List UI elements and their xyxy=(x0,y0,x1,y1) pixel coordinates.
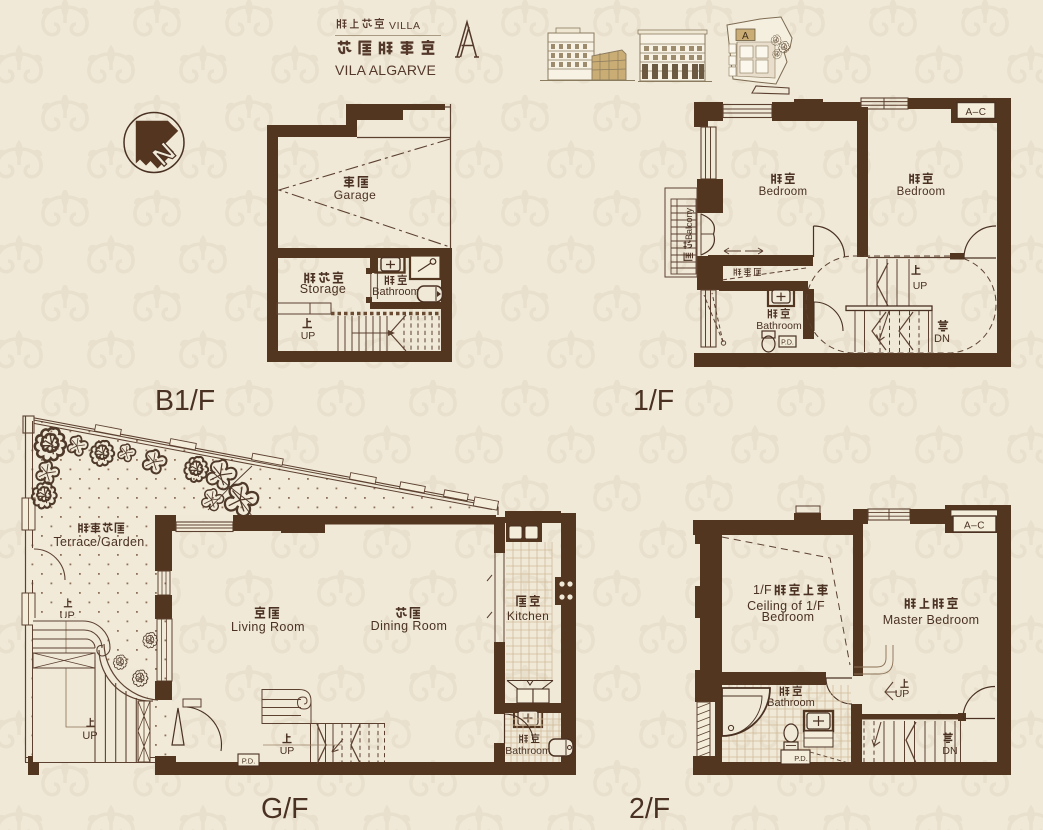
svg-text:Bedroom: Bedroom xyxy=(897,186,946,198)
svg-text:Bedroom: Bedroom xyxy=(762,610,815,624)
svg-text:Terrace/Garden: Terrace/Garden xyxy=(53,535,144,549)
svg-text:UP: UP xyxy=(913,280,928,292)
svg-text:Bathroom: Bathroom xyxy=(372,286,420,298)
svg-text:Bathroom: Bathroom xyxy=(756,320,802,332)
svg-text:P.D.: P.D. xyxy=(781,340,794,347)
svg-text:DN: DN xyxy=(942,745,957,757)
svg-text:Bedroom: Bedroom xyxy=(759,186,808,198)
svg-text:UP: UP xyxy=(895,688,910,700)
svg-text:G/F: G/F xyxy=(261,793,309,825)
svg-text:Storage: Storage xyxy=(300,282,347,296)
svg-text:Living Room: Living Room xyxy=(231,620,305,634)
svg-text:A: A xyxy=(742,31,749,42)
svg-text:P.D.: P.D. xyxy=(242,757,256,766)
svg-text:Kitchen: Kitchen xyxy=(507,609,549,623)
svg-text:VILA ALGARVE: VILA ALGARVE xyxy=(335,62,436,78)
svg-text:Balcony: Balcony xyxy=(684,207,694,240)
svg-text:Master Bedroom: Master Bedroom xyxy=(883,613,980,627)
svg-text:Garage: Garage xyxy=(334,188,376,202)
svg-text:P.D.: P.D. xyxy=(794,754,808,763)
svg-text:B1/F: B1/F xyxy=(155,385,215,417)
svg-text:A–C: A–C xyxy=(964,521,985,532)
svg-text:UP: UP xyxy=(280,745,295,757)
svg-text:UP: UP xyxy=(82,730,97,742)
svg-text:Bathroom: Bathroom xyxy=(505,745,551,757)
svg-text:UP: UP xyxy=(301,330,316,342)
svg-text:Bathroom: Bathroom xyxy=(767,697,815,709)
svg-text:VILLA: VILLA xyxy=(389,20,421,32)
svg-text:DN: DN xyxy=(934,333,950,345)
svg-text:1/F: 1/F xyxy=(753,583,772,597)
svg-text:Dining Room: Dining Room xyxy=(371,619,448,633)
svg-text:A–C: A–C xyxy=(966,107,987,118)
svg-text:1/F: 1/F xyxy=(633,385,674,417)
svg-text:2/F: 2/F xyxy=(629,793,670,825)
